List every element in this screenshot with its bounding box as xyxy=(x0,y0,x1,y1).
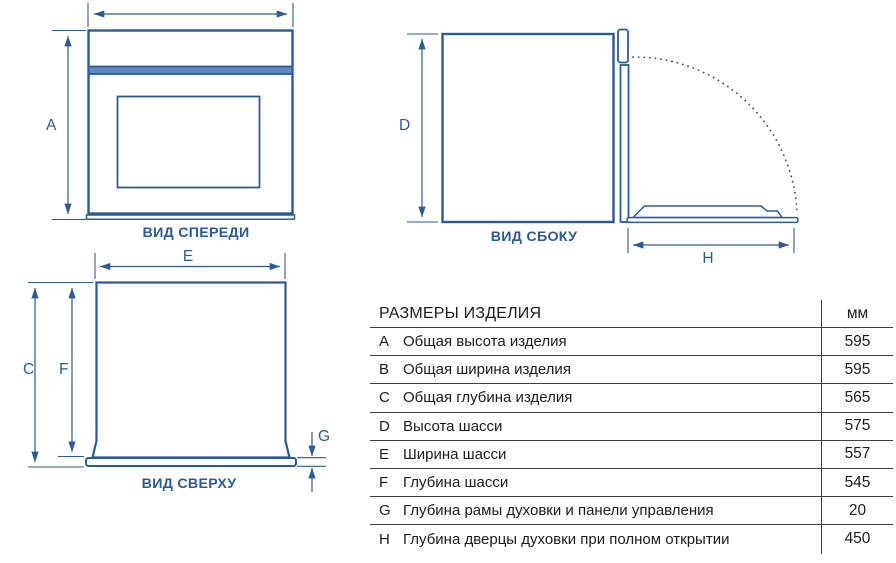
row-label: Высота шасси xyxy=(403,418,502,435)
row-label: Общая высота изделия xyxy=(403,333,567,350)
front-view-drawing: A ВИД СПЕРЕДИ xyxy=(46,3,295,241)
oven-dimensions-figure: A ВИД СПЕРЕДИ D ВИД СБОКУ H xyxy=(0,0,896,563)
row-letter: A xyxy=(379,333,395,350)
table-row-d: DВысота шасси 575 xyxy=(370,413,893,441)
oven-front-body xyxy=(89,31,293,214)
row-value: 557 xyxy=(821,441,893,468)
dimension-letter-h: H xyxy=(702,250,713,267)
row-label: Глубина шасси xyxy=(403,474,508,491)
control-panel-band xyxy=(89,67,293,75)
oven-side-body xyxy=(443,34,614,222)
row-value: 565 xyxy=(821,384,893,411)
table-row-a: AОбщая высота изделия 595 xyxy=(370,328,893,356)
dimension-letter-g: G xyxy=(318,428,330,445)
row-label: Глубина рамы духовки и панели управления xyxy=(403,502,714,519)
row-value: 20 xyxy=(821,497,893,524)
dimension-letter-e: E xyxy=(183,248,193,265)
top-view-drawing: E C F G ВИД СВЕРХУ xyxy=(23,248,330,492)
table-title: РАЗМЕРЫ ИЗДЕЛИЯ xyxy=(370,300,821,327)
dimension-letter-d: D xyxy=(399,117,410,134)
row-label: Ширина шасси xyxy=(403,446,506,463)
table-row-g: GГлубина рамы духовки и панели управлени… xyxy=(370,497,893,525)
row-letter: F xyxy=(379,474,395,491)
oven-front-bottom-trim xyxy=(87,215,295,219)
row-letter: C xyxy=(379,389,395,406)
front-frame-strip xyxy=(86,458,296,466)
side-view-drawing: D ВИД СБОКУ H xyxy=(399,30,798,268)
row-value: 450 xyxy=(821,525,893,553)
dimension-letter-f: F xyxy=(59,361,68,378)
dimension-letter-a: A xyxy=(46,117,57,134)
table-unit-header: мм xyxy=(821,300,893,327)
table-row-e: EШирина шасси 557 xyxy=(370,441,893,469)
oven-door-closed xyxy=(621,65,629,222)
row-letter: D xyxy=(379,418,395,435)
row-value: 595 xyxy=(821,356,893,383)
table-row-b: BОбщая ширина изделия 595 xyxy=(370,356,893,384)
row-label: Глубина дверцы духовки при полном открыт… xyxy=(403,531,729,548)
row-value: 545 xyxy=(821,469,893,496)
door-swing-arc xyxy=(633,57,797,211)
table-row-h: HГлубина дверцы духовки при полном откры… xyxy=(370,525,893,553)
row-letter: E xyxy=(379,446,395,463)
oven-door-open-profile xyxy=(633,206,782,218)
oven-door-open-panel xyxy=(627,218,798,223)
dimensions-table: РАЗМЕРЫ ИЗДЕЛИЯ мм AОбщая высота изделия… xyxy=(370,300,893,554)
row-letter: H xyxy=(379,531,395,548)
dimension-letter-c: C xyxy=(23,361,34,378)
top-view-caption: ВИД СВЕРХУ xyxy=(142,476,237,492)
row-label: Общая глубина изделия xyxy=(403,389,572,406)
side-view-caption: ВИД СБОКУ xyxy=(491,229,578,245)
row-label: Общая ширина изделия xyxy=(403,361,571,378)
row-letter: B xyxy=(379,361,395,378)
front-view-caption: ВИД СПЕРЕДИ xyxy=(143,225,250,241)
door-handle xyxy=(618,30,628,63)
table-header-row: РАЗМЕРЫ ИЗДЕЛИЯ мм xyxy=(370,300,893,328)
row-value: 595 xyxy=(821,328,893,355)
table-row-c: CОбщая глубина изделия 565 xyxy=(370,384,893,412)
row-value: 575 xyxy=(821,413,893,440)
table-row-f: FГлубина шасси 545 xyxy=(370,469,893,497)
oven-top-body xyxy=(93,283,290,458)
row-letter: G xyxy=(379,502,395,519)
